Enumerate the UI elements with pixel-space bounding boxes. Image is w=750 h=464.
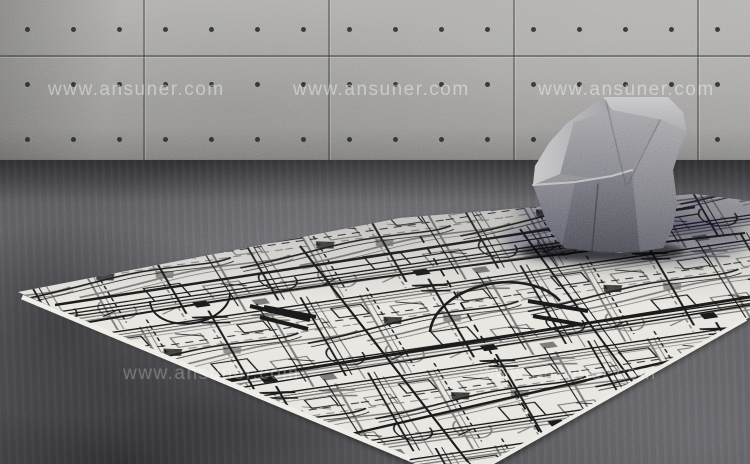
product-photo-scene: www.ansuner.comwww.ansuner.comwww.ansune… xyxy=(0,0,750,464)
scene-graphics xyxy=(0,0,750,464)
chair-fabric-speckle xyxy=(533,97,687,253)
lounge-chair xyxy=(533,97,687,253)
